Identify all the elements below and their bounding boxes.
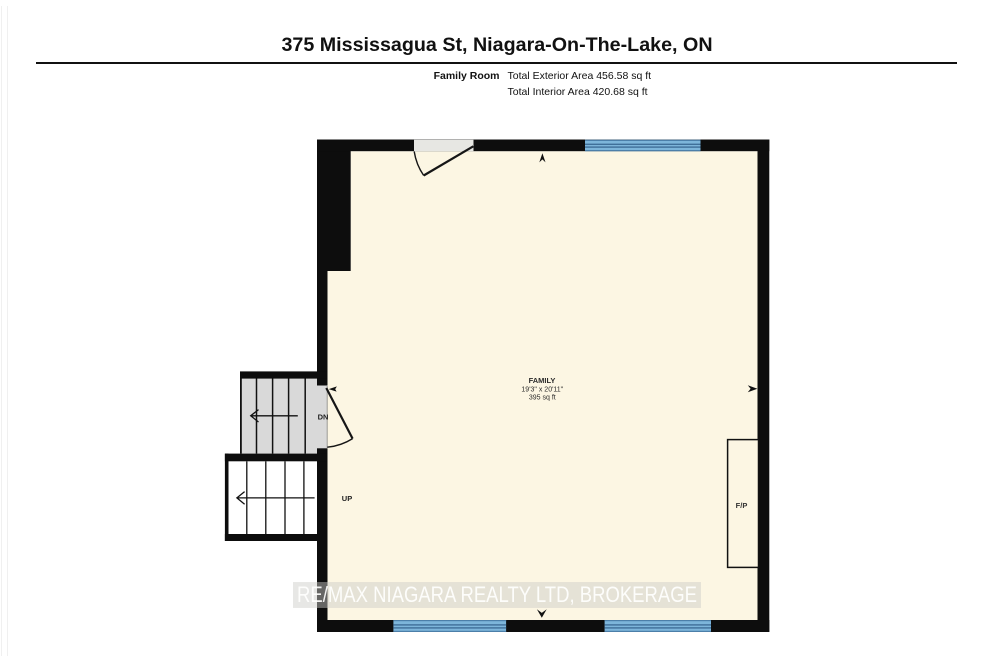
svg-text:395 sq ft: 395 sq ft: [529, 395, 556, 402]
svg-text:FAMILY: FAMILY: [529, 376, 556, 385]
svg-text:19'3" x 20'11": 19'3" x 20'11": [521, 386, 563, 393]
svg-text:F/P: F/P: [736, 501, 748, 510]
svg-text:DN: DN: [318, 413, 329, 422]
svg-text:UP: UP: [342, 494, 352, 503]
